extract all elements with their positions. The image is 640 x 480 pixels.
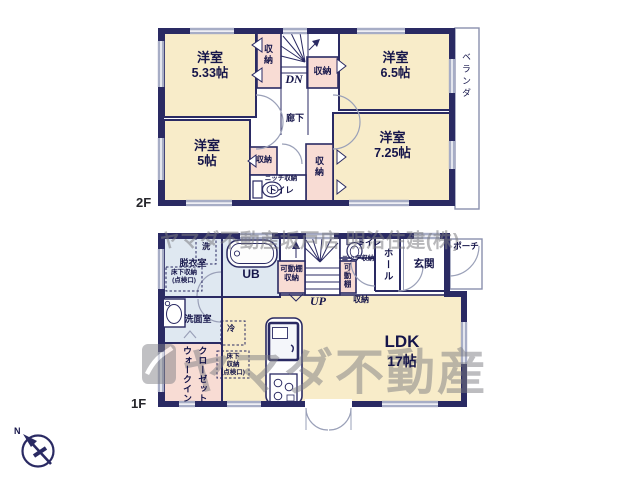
closet-label-1f: 収納 [348, 295, 374, 305]
underfloor-label-dressing: 床下収納 (点検口) [166, 269, 202, 285]
toilet-label-2f: トイレ [260, 185, 302, 195]
room-label-ldk: LDK 17帖 [360, 332, 444, 370]
shelf-closet-label-1f: 可動棚 収納 [279, 264, 304, 282]
closet-label-2f-b: 収納 [308, 66, 337, 77]
room-label-western-7-25: 洋室 7.25帖 [333, 130, 452, 161]
floorplan-canvas: ヤマダ不動産坂戸店 明治住建(株) ヤマダ不動産 洋室 5.33帖 洋室 6.5… [0, 0, 640, 480]
closet-label-2f-d: 収納 [313, 156, 324, 178]
floor-label-2f: 2F [136, 195, 151, 210]
room-label-western-6-5: 洋室 6.5帖 [339, 50, 452, 81]
closet-label-2f-c: 収納 [251, 155, 277, 165]
unit-bath-label: UB [228, 267, 274, 282]
hall-label: ホール [381, 248, 393, 283]
porch-label: ポーチ [450, 241, 482, 251]
stairs-up-label: UP [305, 294, 331, 309]
underfloor-label-ldk: 床下 収納 (点検口) [217, 353, 249, 377]
watermark-logo [142, 344, 176, 384]
niche-label-1f: ニッチ収納 [336, 255, 380, 263]
dressing-room-label: 脱衣室 [166, 258, 220, 269]
room-label-western-5: 洋室 5帖 [164, 138, 250, 169]
shelf-label-1f: 可動棚 [343, 263, 352, 289]
compass-n-label: N [14, 426, 21, 437]
room-label-western-5-33: 洋室 5.33帖 [164, 50, 256, 81]
niche-label-2f: ニッチ収納 [258, 175, 304, 183]
compass-icon [23, 434, 54, 467]
toilet-label-1f: トイレ [352, 238, 386, 248]
wic-label: ウォークイン クローゼット [181, 346, 207, 406]
corridor-label: 廊下 [278, 113, 312, 124]
veranda-label: ベランダ [460, 52, 471, 100]
fridge-label: 冷 [222, 324, 240, 334]
floor-label-1f: 1F [131, 396, 146, 411]
washer-label: 洗 [197, 242, 215, 252]
entrance-label: 玄関 [402, 258, 446, 271]
washroom-label: 洗面室 [176, 314, 220, 325]
stairs-dn-label: DN [282, 72, 306, 87]
closet-label-2f-a: 収納 [262, 44, 273, 66]
